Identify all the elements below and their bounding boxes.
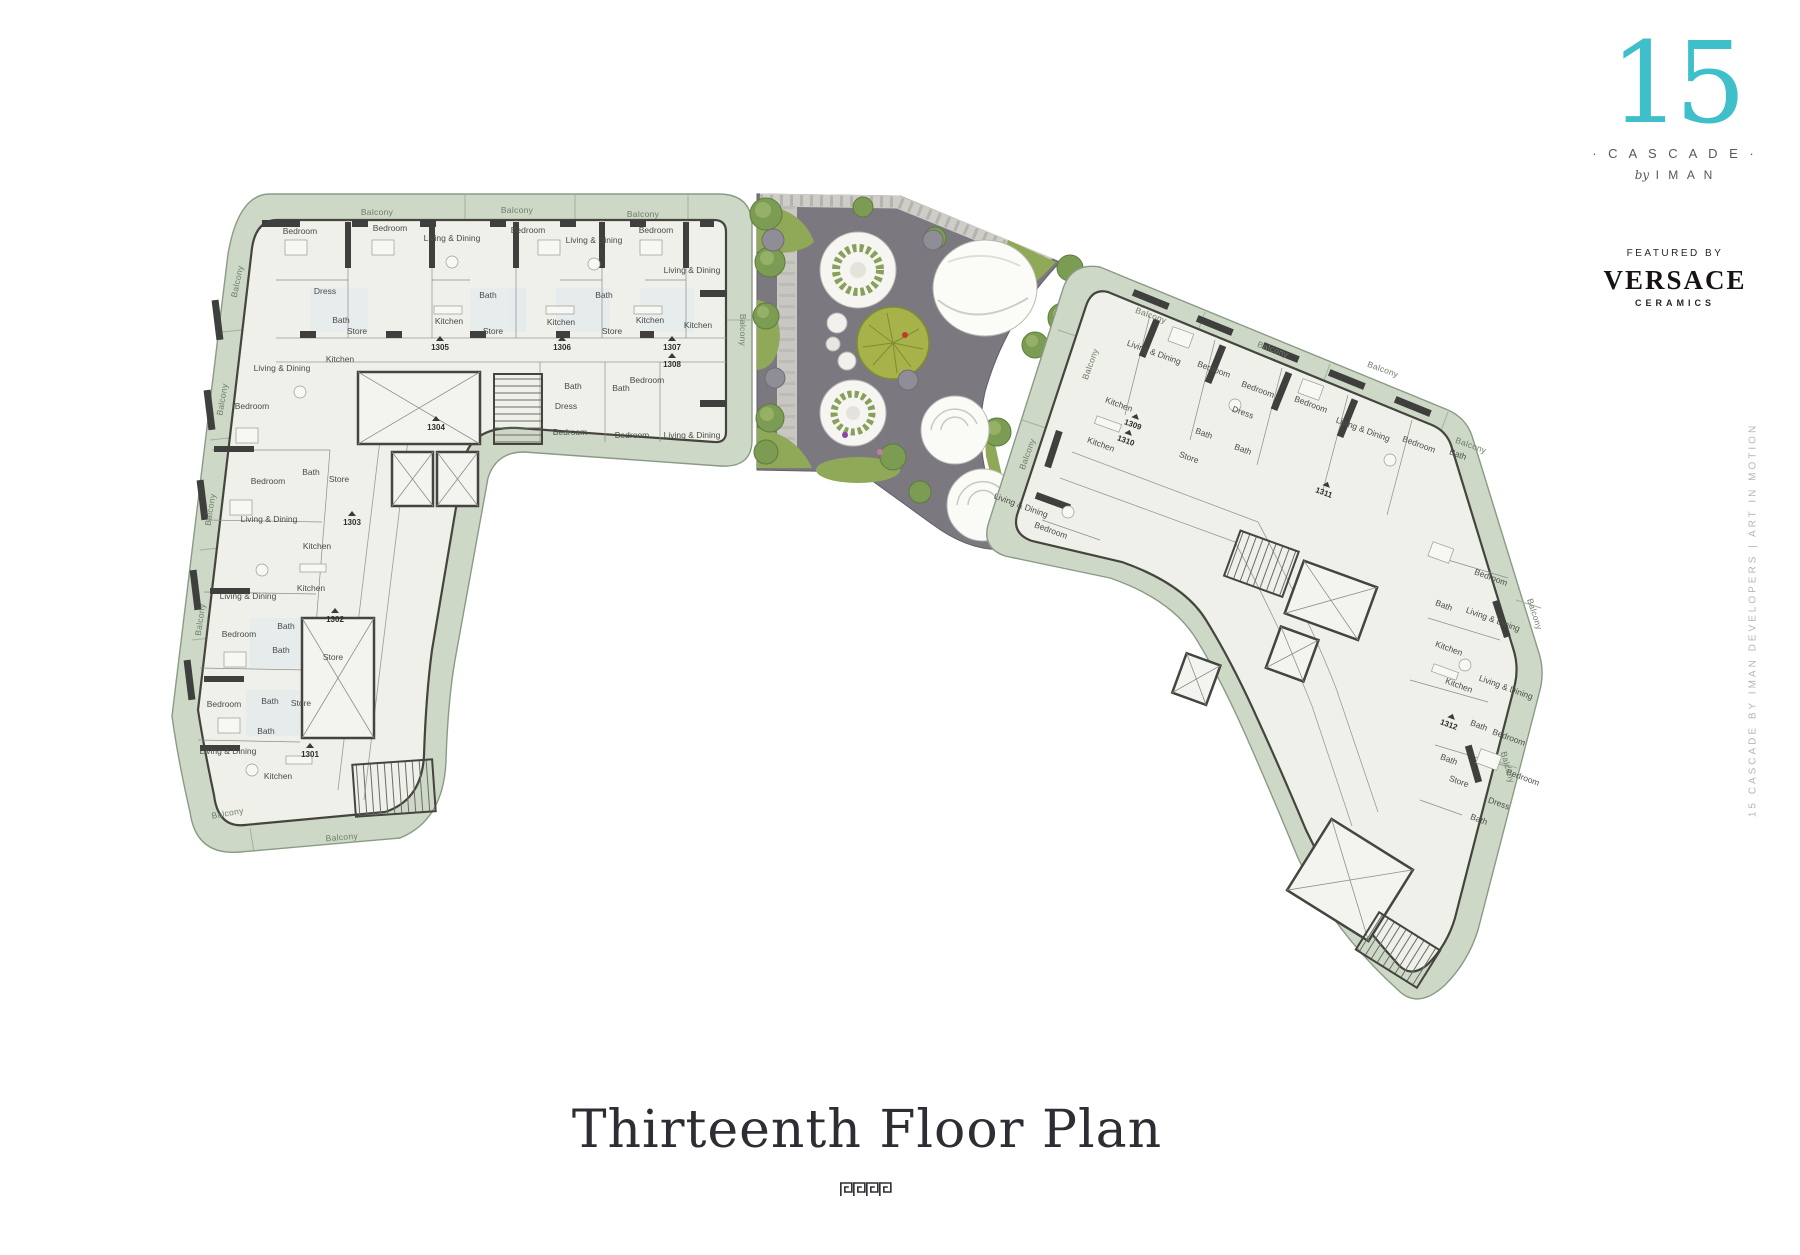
unit-number: 1307 — [663, 343, 681, 352]
unit-number: 1306 — [553, 343, 571, 352]
room-label: Kitchen — [303, 541, 332, 551]
stair-icon — [494, 374, 542, 444]
title-block: Thirteenth Floor Plan — [572, 1100, 1162, 1203]
room-label: Store — [347, 326, 368, 336]
room-label: Bedroom — [373, 223, 408, 233]
room-label: Kitchen — [326, 354, 355, 364]
stair-icon — [352, 759, 435, 816]
unit-number: 1301 — [301, 750, 319, 759]
room-label: Bedroom — [630, 375, 665, 385]
left-wing: BedroomBedroomLiving & DiningBedroomLivi… — [172, 194, 752, 852]
room-label: Bath — [595, 290, 613, 300]
room-label: Bedroom — [251, 476, 286, 486]
room-label: Bedroom — [553, 427, 588, 437]
room-label: Living & Dining — [664, 430, 721, 440]
room-label: Kitchen — [684, 320, 713, 330]
room-label: Kitchen — [297, 583, 326, 593]
room-label: Bedroom — [283, 226, 318, 236]
room-label: Bedroom — [639, 225, 674, 235]
room-label: Bath — [277, 621, 295, 631]
room-label: Bedroom — [615, 430, 650, 440]
unit-number: 1303 — [343, 518, 361, 527]
floor-plan-drawing: BedroomBedroomLiving & DiningBedroomLivi… — [0, 0, 1800, 1255]
balcony-label: Balcony — [361, 207, 394, 217]
unit-number: 1305 — [431, 343, 449, 352]
brand-logo-byline: by I M A N — [1545, 168, 1800, 182]
page-title: Thirteenth Floor Plan — [572, 1100, 1162, 1160]
room-label: Store — [483, 326, 504, 336]
unit-number: 1304 — [427, 423, 445, 432]
room-label: Bath — [479, 290, 497, 300]
featured-by-label: FEATURED BY — [1555, 248, 1795, 259]
room-label: Kitchen — [264, 771, 293, 781]
room-label: Living & Dining — [664, 265, 721, 275]
room-label: Store — [602, 326, 623, 336]
room-label: Store — [291, 698, 312, 708]
greek-key-ornament — [572, 1182, 1162, 1203]
versace-logo: VERSACE — [1555, 265, 1795, 296]
room-label: Dress — [314, 286, 336, 296]
unit-number: 1302 — [326, 615, 344, 624]
brand-logo: 15 · C A S C A D E · by I M A N — [1545, 28, 1800, 182]
room-label: Living & Dining — [241, 514, 298, 524]
room-label: Living & Dining — [220, 591, 277, 601]
balcony-label: Balcony — [1366, 359, 1400, 380]
room-label: Kitchen — [435, 316, 464, 326]
room-label: Bedroom — [511, 225, 546, 235]
room-label: Store — [323, 652, 344, 662]
balcony-label: Balcony — [501, 205, 534, 215]
room-label: Bath — [302, 467, 320, 477]
versace-sub-label: CERAMICS — [1555, 298, 1795, 308]
brand-by-prefix: by — [1635, 168, 1649, 182]
room-label: Bedroom — [235, 401, 270, 411]
room-label: Living & Dining — [254, 363, 311, 373]
room-label: Bath — [261, 696, 279, 706]
room-label: Kitchen — [636, 315, 665, 325]
room-label: Bath — [272, 645, 290, 655]
room-label: Kitchen — [547, 317, 576, 327]
room-label: Bath — [332, 315, 350, 325]
room-label: Bedroom — [222, 629, 257, 639]
balcony-label: Balcony — [627, 209, 660, 219]
greek-key-icon — [840, 1182, 894, 1198]
unit-number: 1308 — [663, 360, 681, 369]
room-label: Store — [329, 474, 350, 484]
brand-logo-number: 15 — [1545, 28, 1800, 140]
featured-by-block: FEATURED BY VERSACE CERAMICS — [1555, 248, 1795, 308]
room-label: Bath — [612, 383, 630, 393]
room-label: Living & Dining — [200, 746, 257, 756]
room-label: Living & Dining — [424, 233, 481, 243]
right-wing: Living & DiningBedroomBedroomBedroomLivi… — [987, 266, 1542, 999]
side-credit-text: 15 CASCADE BY IMAN DEVELOPERS | ART IN M… — [1748, 423, 1759, 817]
room-label: Bath — [564, 381, 582, 391]
room-label: Bedroom — [207, 699, 242, 709]
brand-logo-name: · C A S C A D E · — [1545, 146, 1800, 161]
brochure-page: { "title": "Thirteenth Floor Plan", "bra… — [0, 0, 1800, 1255]
room-label: Dress — [555, 401, 577, 411]
room-label: Bath — [257, 726, 275, 736]
brand-by-name: I M A N — [1656, 168, 1716, 182]
balcony-label: Balcony — [738, 314, 748, 347]
room-label: Living & Dining — [566, 235, 623, 245]
